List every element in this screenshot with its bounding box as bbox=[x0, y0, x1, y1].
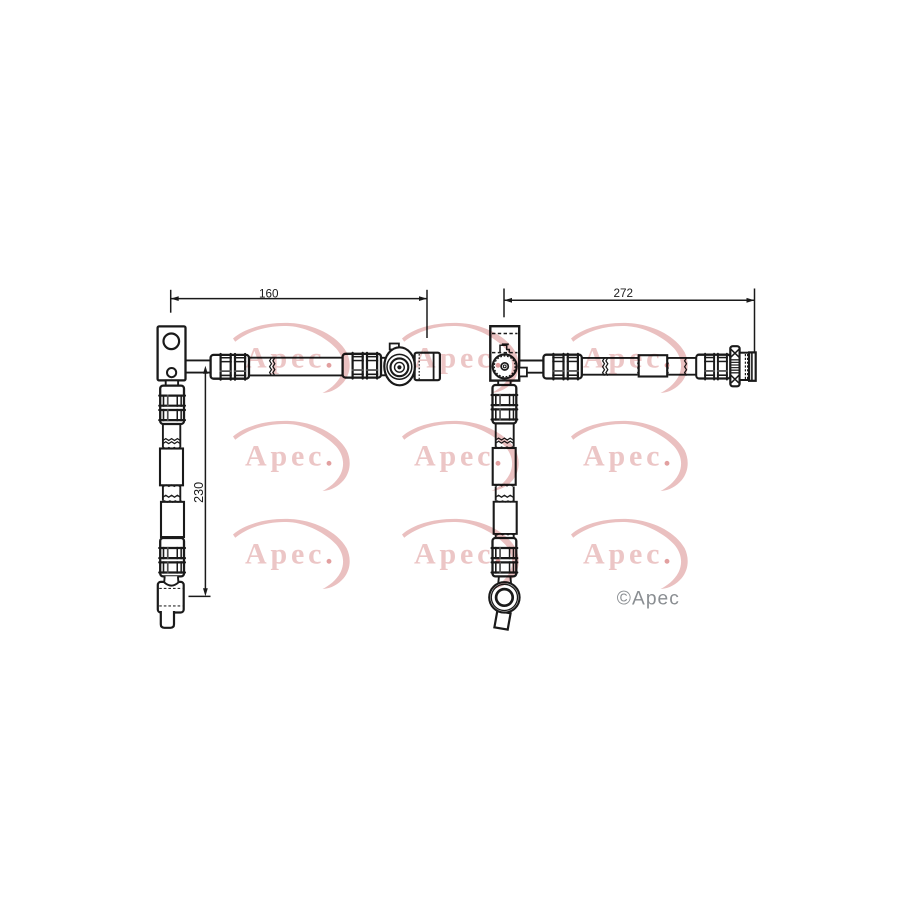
svg-text:272: 272 bbox=[614, 287, 634, 300]
svg-text:230: 230 bbox=[192, 482, 206, 503]
svg-text:160: 160 bbox=[259, 288, 279, 301]
svg-text:©Apec: ©Apec bbox=[617, 589, 680, 610]
